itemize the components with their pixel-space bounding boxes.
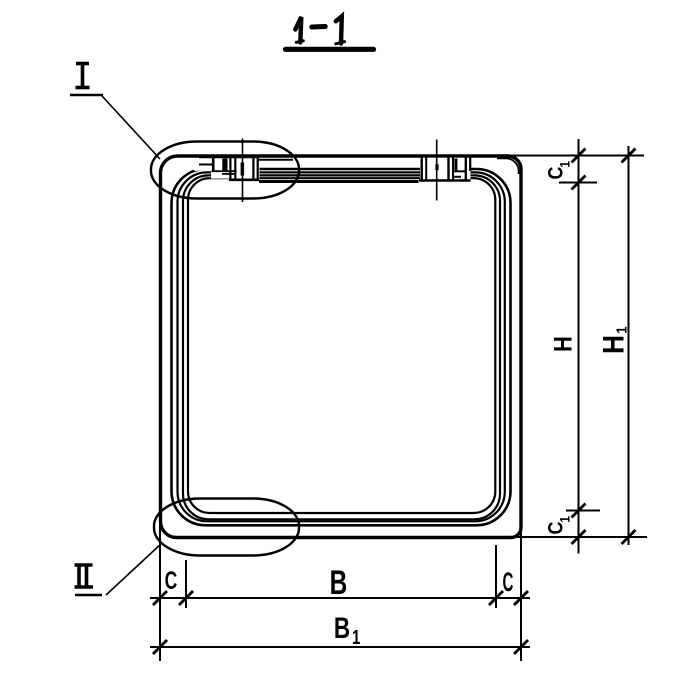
svg-text:C: C — [544, 167, 568, 180]
svg-text:1: 1 — [613, 326, 630, 333]
svg-text:C: C — [544, 522, 568, 535]
svg-text:1: 1 — [352, 626, 360, 649]
svg-text:B: B — [334, 611, 350, 645]
svg-text:H: H — [596, 335, 630, 354]
svg-text:B: B — [330, 564, 348, 602]
svg-text:H: H — [549, 336, 577, 352]
svg-text:1: 1 — [557, 516, 573, 523]
svg-text:C: C — [165, 566, 178, 595]
svg-text:C: C — [503, 566, 514, 597]
svg-text:1: 1 — [557, 161, 573, 168]
